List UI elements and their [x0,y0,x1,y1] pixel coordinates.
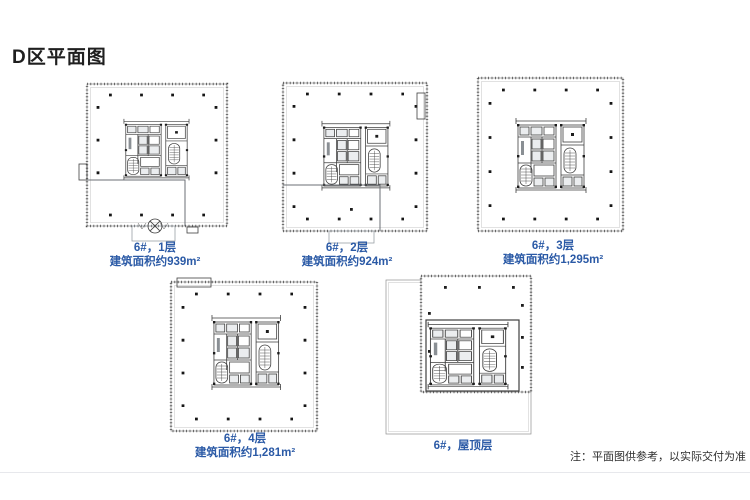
page-divider [0,472,750,473]
disclaimer-note: 注：平面图供参考，以实际交付为准 [570,448,746,464]
plan-label-1f: 6#，1层 建筑面积约939m² [75,242,235,269]
plan-name: 6#，1层 [75,242,235,255]
floor-plan-sheet: D区平面图 [0,0,750,500]
floor-plan-4f [167,276,325,444]
plan-area: 建筑面积约939m² [75,255,235,269]
plan-area: 建筑面积约924m² [267,255,427,269]
plan-name: 6#，屋顶层 [383,440,543,453]
plan-area: 建筑面积约1,295m² [473,253,633,267]
plan-label-roof: 6#，屋顶层 [383,440,543,453]
floor-plan-2f [276,78,434,246]
plan-area: 建筑面积约1,281m² [165,446,325,460]
facade-outline [87,84,227,226]
plan-label-3f: 6#，3层 建筑面积约1,295m² [473,240,633,267]
floor-plan-3f [474,72,632,240]
plan-name: 6#，2层 [267,242,427,255]
plan-name: 6#，3层 [473,240,633,253]
floor-plan-1f [74,78,232,246]
plan-label-2f: 6#，2层 建筑面积约924m² [267,242,427,269]
floor-plan-roof [382,272,534,450]
plan-label-4f: 6#，4层 建筑面积约1,281m² [165,433,325,460]
page-title: D区平面图 [12,42,107,69]
plan-name: 6#，4层 [165,433,325,446]
